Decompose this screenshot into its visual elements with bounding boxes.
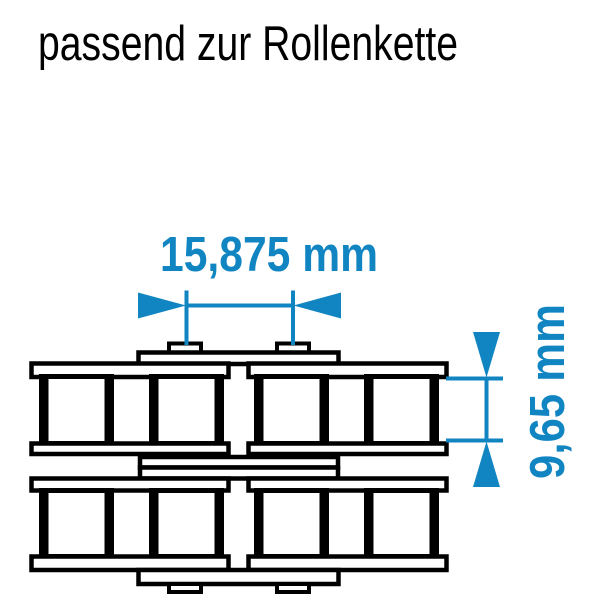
roller [257,377,327,444]
roller [152,377,222,444]
chain-drawing [32,344,447,593]
pin-end [277,584,309,592]
arrowhead-right-icon [138,293,186,319]
chain-diagram: passend zur Rollenkette [0,0,600,600]
roller [257,491,327,557]
outer-link-plate [32,444,229,455]
diagram-canvas: passend zur Rollenkette [0,0,600,600]
arrowhead-left-icon [294,293,342,319]
roller [367,377,437,444]
arrowhead-up-icon [473,442,500,488]
roller [42,377,112,444]
roller [42,491,112,557]
inner-width-dimension: 9,65 mm [446,304,575,487]
pitch-dimension: 15,875 mm [138,228,378,345]
inner-width-dimension-label: 9,65 mm [521,304,575,479]
roller [367,491,437,557]
inner-link-plate [139,570,339,584]
pitch-dimension-label: 15,875 mm [160,228,378,282]
pin-end [169,584,201,592]
arrowhead-down-icon [473,332,500,378]
page-title: passend zur Rollenkette [38,17,458,71]
outer-link-plate [249,444,447,455]
roller [152,491,222,557]
